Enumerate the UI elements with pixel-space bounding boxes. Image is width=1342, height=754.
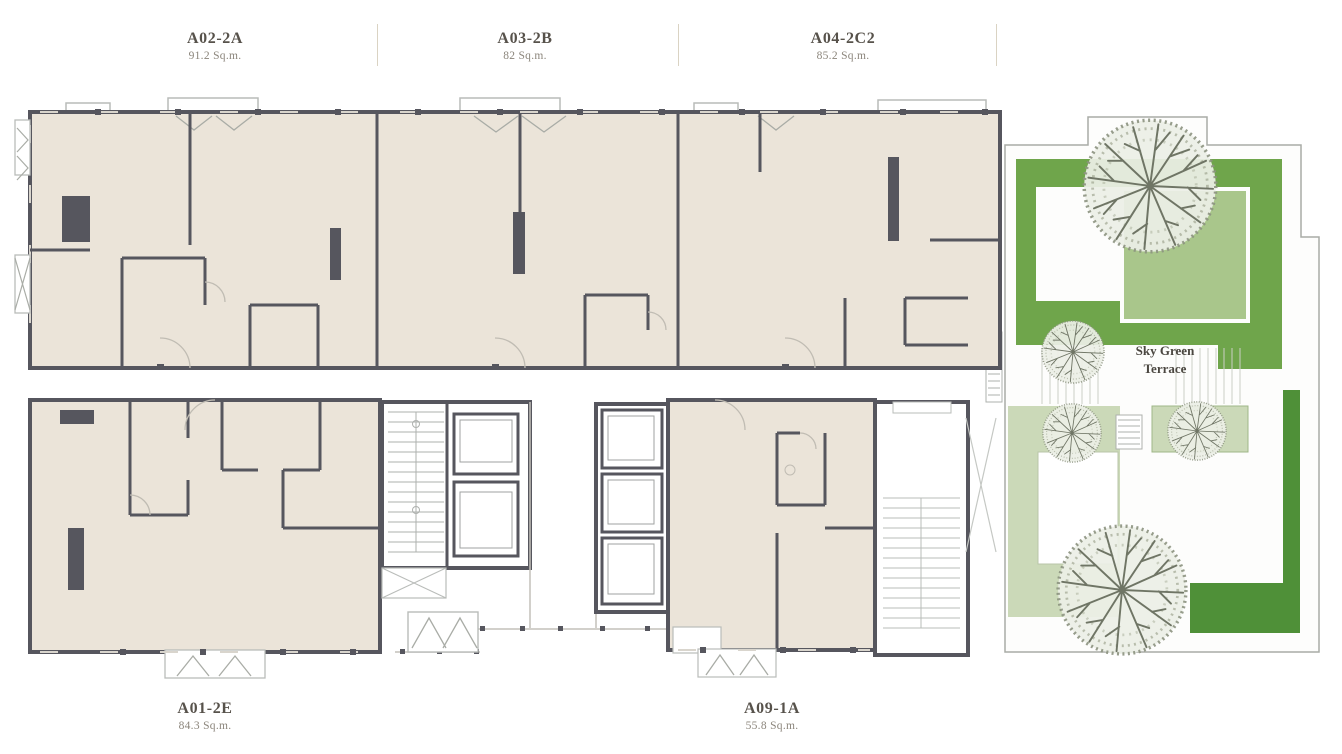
unit-label-a04-2c2: A04-2C2 85.2 Sq.m. (768, 30, 918, 62)
tree-icon (1042, 321, 1104, 383)
facade-brace (966, 418, 996, 552)
tree-icon (1168, 402, 1226, 460)
label-divider (678, 24, 679, 66)
elevator-car (454, 482, 518, 556)
unit-area: 55.8 Sq.m. (697, 720, 847, 732)
unit-a01-slab (30, 400, 380, 652)
stair-core-left (382, 402, 530, 598)
unit-a09-slab (668, 400, 875, 650)
unit-area: 82 Sq.m. (450, 50, 600, 62)
unit-label-a03-2b: A03-2B 82 Sq.m. (450, 30, 600, 62)
tree-icon (1084, 120, 1216, 252)
elevator-car (602, 474, 662, 532)
terrace-label: Sky Green Terrace (1117, 342, 1213, 378)
terrace-lawn-frame-ext (1218, 345, 1282, 369)
terrace-hedge-bottom (1190, 583, 1300, 633)
elevator-bank (596, 404, 668, 612)
elevator-car (454, 414, 518, 474)
label-divider (377, 24, 378, 66)
unit-label-a01-2e: A01-2E 84.3 Sq.m. (130, 700, 280, 732)
unit-a09-bay (698, 649, 776, 677)
tree-icon (1043, 404, 1101, 462)
unit-code: A09-1A (697, 700, 847, 718)
unit-code: A04-2C2 (768, 30, 918, 48)
unit-code: A01-2E (130, 700, 280, 718)
unit-code: A03-2B (450, 30, 600, 48)
tree-icon (1058, 526, 1186, 654)
stair-core-right (875, 402, 968, 655)
bottom-wing (30, 400, 996, 678)
unit-area: 85.2 Sq.m. (768, 50, 918, 62)
floor-plan-page: A02-2A 91.2 Sq.m. A03-2B 82 Sq.m. A04-2C… (0, 0, 1342, 754)
top-wing (15, 98, 1000, 368)
unit-label-a09-1a: A09-1A 55.8 Sq.m. (697, 700, 847, 732)
elevator-car (602, 410, 662, 468)
unit-area: 84.3 Sq.m. (130, 720, 280, 732)
unit-label-a02-2a: A02-2A 91.2 Sq.m. (140, 30, 290, 62)
unit-area: 91.2 Sq.m. (140, 50, 290, 62)
label-divider (996, 24, 997, 66)
unit-code: A02-2A (140, 30, 290, 48)
